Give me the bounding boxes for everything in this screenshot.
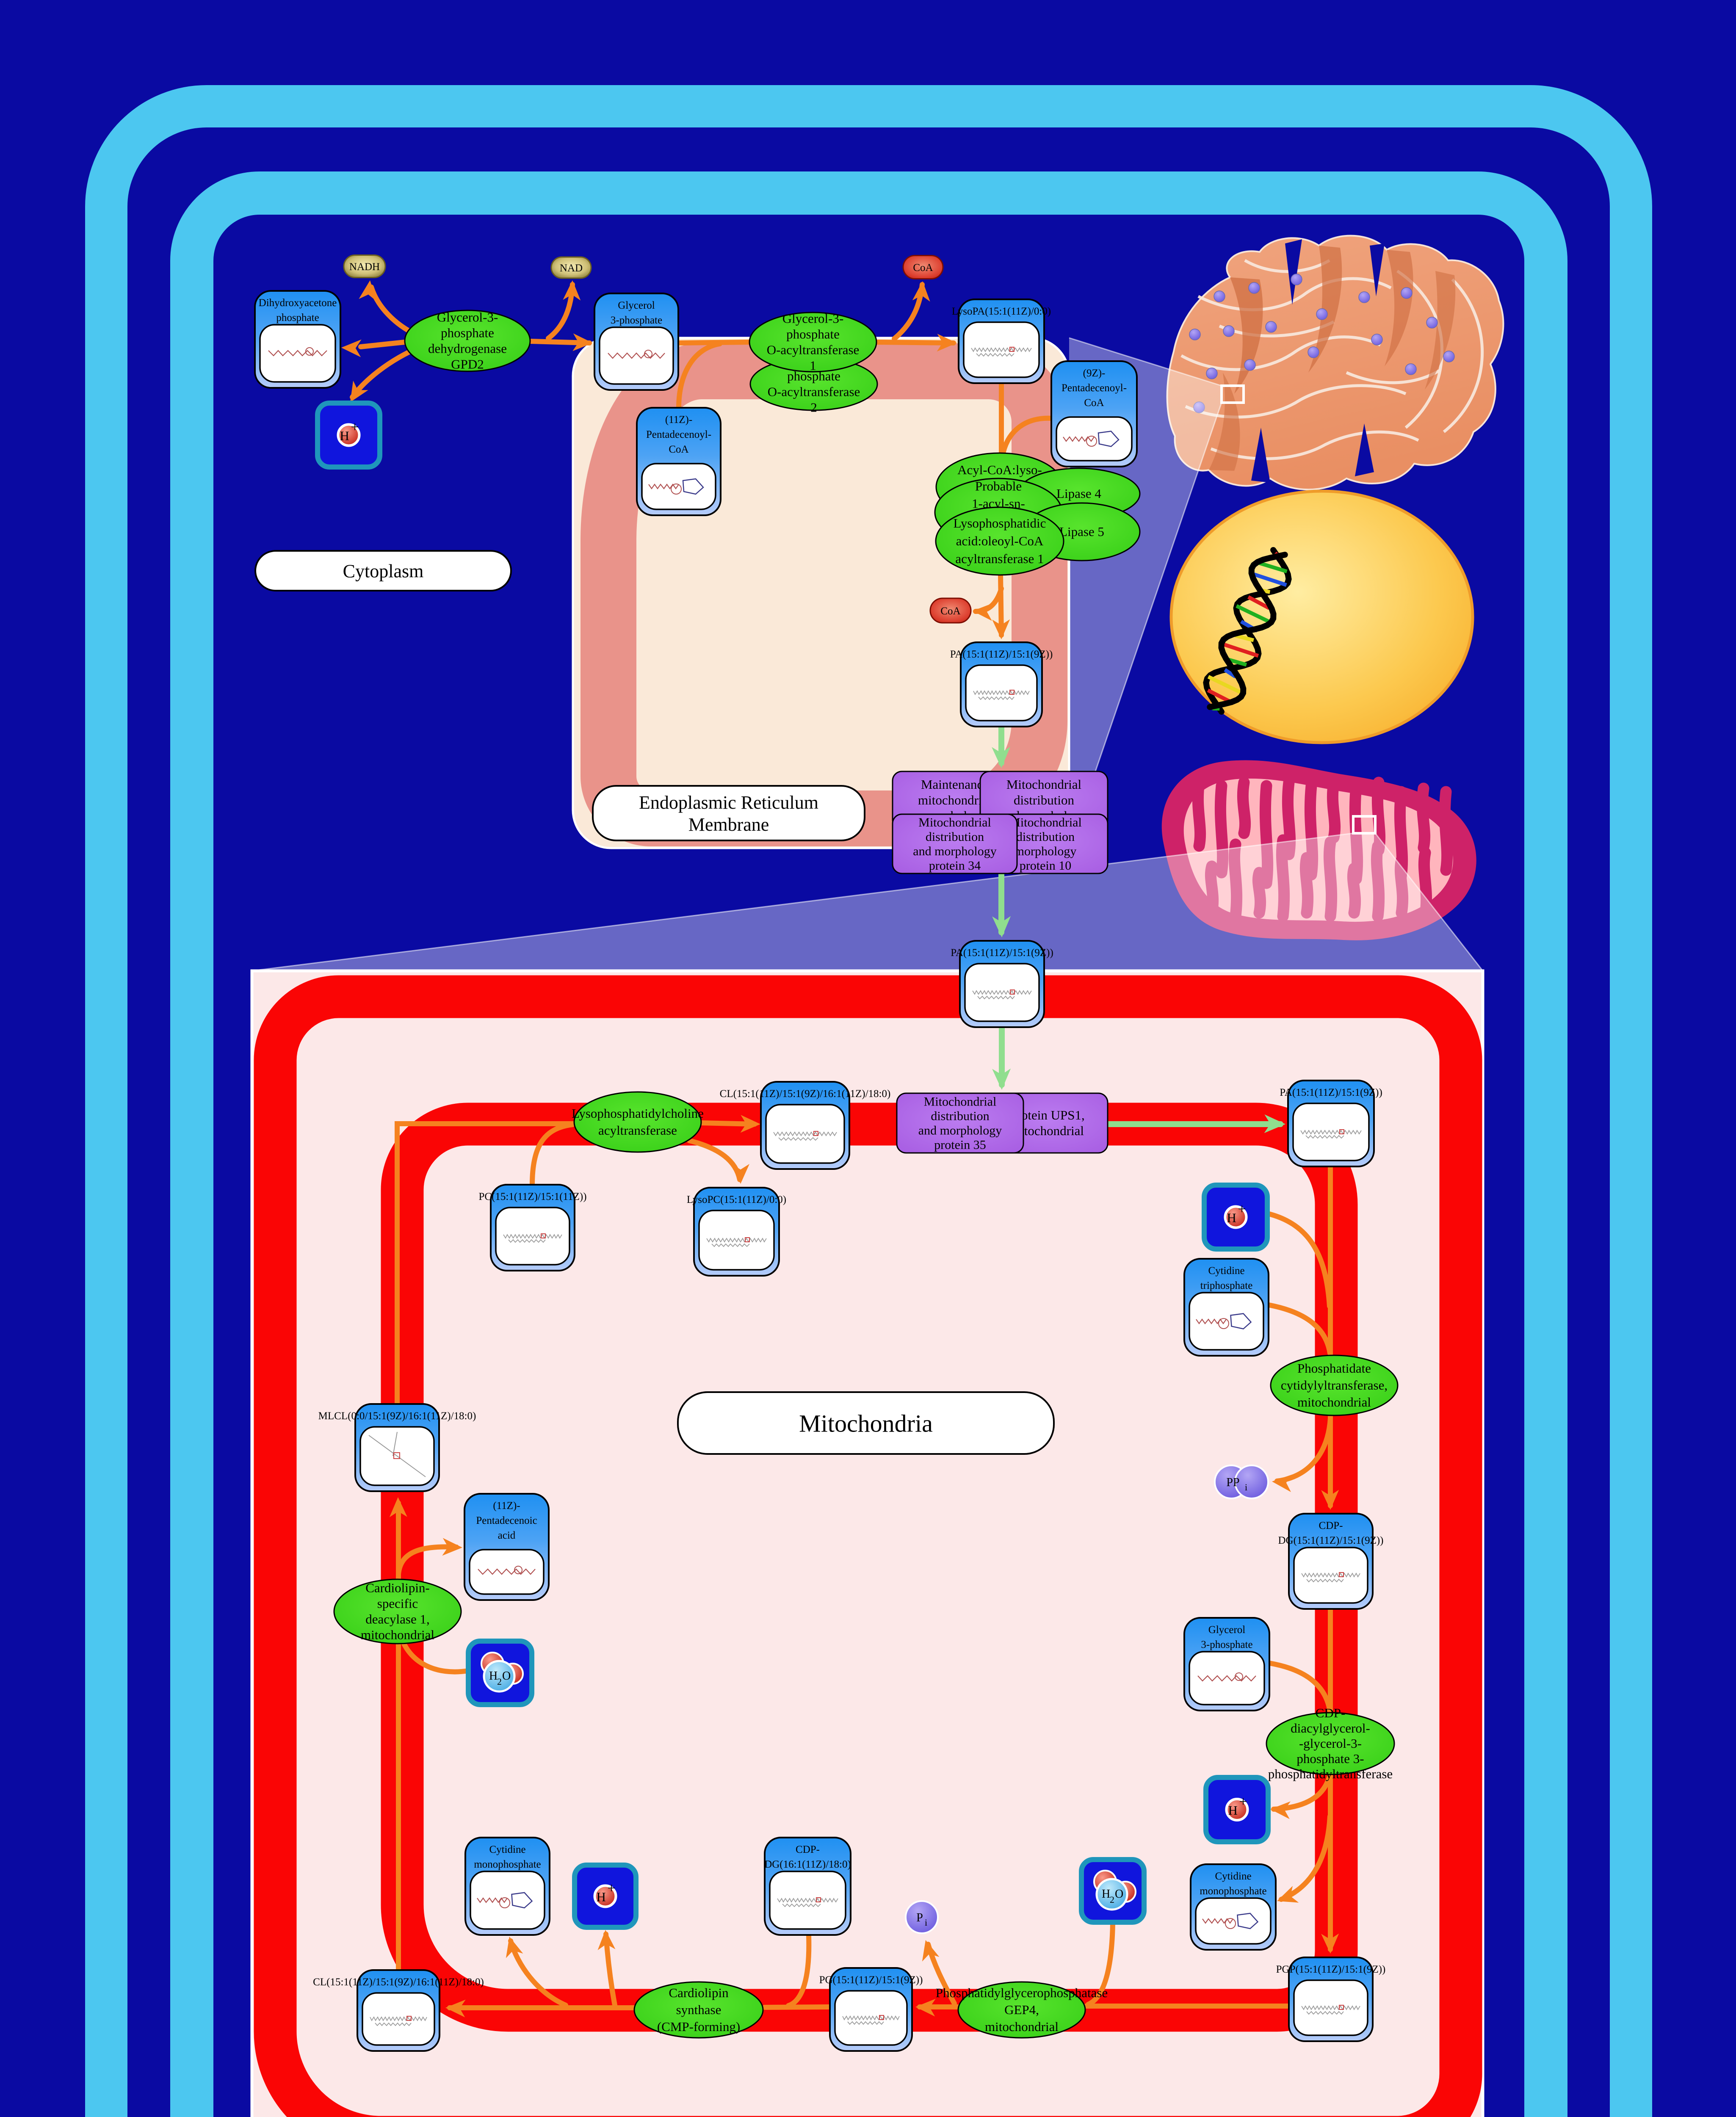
- svg-text:-glycerol-3-: -glycerol-3-: [1299, 1736, 1362, 1751]
- svg-text:acid:oleoyl-CoA: acid:oleoyl-CoA: [956, 533, 1044, 548]
- svg-text:O: O: [502, 1669, 511, 1683]
- svg-text:Endoplasmic Reticulum: Endoplasmic Reticulum: [639, 792, 818, 813]
- svg-text:protein 10: protein 10: [1020, 859, 1071, 873]
- svg-text:Membrane: Membrane: [688, 814, 769, 835]
- svg-text:phosphate 3-: phosphate 3-: [1296, 1751, 1364, 1766]
- svg-text:CDP-: CDP-: [1316, 1705, 1346, 1720]
- svg-text:Acyl-CoA:lyso-: Acyl-CoA:lyso-: [957, 462, 1042, 477]
- svg-text:i: i: [1245, 1482, 1247, 1492]
- svg-text:mitochondrial: mitochondrial: [985, 2019, 1059, 2034]
- svg-text:Lysophosphatidic: Lysophosphatidic: [954, 516, 1046, 531]
- svg-text:i: i: [925, 1917, 927, 1928]
- svg-text:acid: acid: [498, 1530, 516, 1541]
- svg-text:distribution: distribution: [1016, 830, 1075, 844]
- svg-text:CoA: CoA: [1084, 397, 1104, 409]
- svg-text:phosphate: phosphate: [441, 326, 494, 340]
- svg-text:1: 1: [810, 358, 816, 373]
- svg-text:2: 2: [810, 400, 817, 415]
- svg-text:3-phosphate: 3-phosphate: [1201, 1639, 1252, 1650]
- svg-text:Phosphatidylglycerophosphatase: Phosphatidylglycerophosphatase: [936, 1985, 1108, 2000]
- svg-text:(9Z)-: (9Z)-: [1083, 368, 1106, 379]
- svg-text:PP: PP: [1226, 1476, 1239, 1489]
- svg-text:+: +: [1239, 1794, 1247, 1810]
- svg-text:Mitochondrial: Mitochondrial: [1006, 777, 1081, 792]
- svg-text:Glycerol-3-: Glycerol-3-: [782, 311, 844, 326]
- svg-text:Mitochondrial: Mitochondrial: [924, 1095, 997, 1109]
- svg-text:(11Z)-: (11Z)-: [665, 414, 692, 426]
- svg-text:DG(16:1(11Z)/18:0): DG(16:1(11Z)/18:0): [764, 1859, 851, 1870]
- svg-text:PGP(15:1(11Z)/15:1(9Z)): PGP(15:1(11Z)/15:1(9Z)): [1276, 1964, 1386, 1975]
- svg-text:H: H: [1228, 1803, 1238, 1818]
- svg-text:acyltransferase: acyltransferase: [598, 1123, 677, 1138]
- svg-text:Cytidine: Cytidine: [1208, 1265, 1244, 1277]
- svg-text:O-acyltransferase: O-acyltransferase: [768, 384, 860, 399]
- svg-text:Mitochondrial: Mitochondrial: [1009, 815, 1082, 829]
- svg-text:PA(15:1(11Z)/15:1(9Z)): PA(15:1(11Z)/15:1(9Z)): [950, 649, 1053, 660]
- svg-text:O-acyltransferase: O-acyltransferase: [767, 343, 860, 357]
- svg-text:mitochondrial: mitochondrial: [361, 1628, 434, 1642]
- svg-text:LysoPA(15:1(11Z)/0:0): LysoPA(15:1(11Z)/0:0): [952, 306, 1051, 317]
- svg-text:dehydrogenase: dehydrogenase: [428, 341, 507, 356]
- svg-text:H: H: [489, 1669, 498, 1683]
- svg-text:monophosphate: monophosphate: [1200, 1885, 1266, 1897]
- svg-text:distribution: distribution: [1014, 793, 1074, 807]
- svg-text:Glycerol: Glycerol: [618, 300, 655, 311]
- svg-text:Mitochondria: Mitochondria: [799, 1409, 933, 1437]
- svg-text:3-phosphate: 3-phosphate: [611, 315, 662, 326]
- svg-text:CoA: CoA: [669, 444, 688, 455]
- svg-text:and morphology: and morphology: [913, 844, 996, 858]
- svg-text:H: H: [1102, 1888, 1110, 1901]
- svg-text:LysoPC(15:1(11Z)/0:0): LysoPC(15:1(11Z)/0:0): [687, 1194, 786, 1205]
- svg-text:Probable: Probable: [975, 479, 1022, 494]
- svg-text:2: 2: [1110, 1894, 1114, 1905]
- svg-text:and morphology: and morphology: [918, 1124, 1002, 1138]
- svg-text:2: 2: [497, 1676, 502, 1687]
- svg-text:monophosphate: monophosphate: [474, 1859, 541, 1870]
- svg-text:CL(15:1(11Z)/15:1(9Z)/16:1(11Z: CL(15:1(11Z)/15:1(9Z)/16:1(11Z)/18:0): [720, 1088, 891, 1100]
- svg-text:synthase: synthase: [676, 2002, 721, 2017]
- svg-text:acyltransferase 1: acyltransferase 1: [955, 551, 1044, 566]
- svg-text:distribution: distribution: [931, 1109, 989, 1123]
- svg-text:+: +: [1238, 1202, 1246, 1217]
- svg-text:mitochondrial: mitochondrial: [1297, 1395, 1371, 1409]
- svg-text:Lipase 4: Lipase 4: [1056, 486, 1101, 501]
- svg-text:PA(15:1(11Z)/15:1(9Z)): PA(15:1(11Z)/15:1(9Z)): [1280, 1087, 1382, 1098]
- svg-text:distribution: distribution: [926, 830, 984, 844]
- svg-text:Pentadecenoyl-: Pentadecenoyl-: [1062, 382, 1127, 394]
- svg-text:MLCL(0:0/15:1(9Z)/16:1(11Z)/18: MLCL(0:0/15:1(9Z)/16:1(11Z)/18:0): [318, 1410, 476, 1422]
- svg-text:H: H: [340, 428, 349, 443]
- svg-text:Phosphatidate: Phosphatidate: [1297, 1361, 1371, 1376]
- svg-text:phosphate: phosphate: [276, 312, 319, 323]
- svg-text:CDP-: CDP-: [1319, 1520, 1343, 1531]
- svg-text:Mitochondrial: Mitochondrial: [918, 815, 991, 829]
- svg-text:phosphatidyltransferase: phosphatidyltransferase: [1268, 1766, 1393, 1781]
- svg-text:+: +: [351, 420, 359, 435]
- svg-text:GPD2: GPD2: [451, 357, 484, 372]
- svg-text:GEP4,: GEP4,: [1004, 2002, 1039, 2017]
- svg-text:NAD: NAD: [560, 263, 583, 274]
- svg-text:Cardiolipin: Cardiolipin: [669, 1985, 729, 2000]
- svg-text:H: H: [1227, 1211, 1236, 1225]
- svg-text:Lipase 5: Lipase 5: [1059, 524, 1104, 539]
- svg-text:O: O: [1115, 1888, 1123, 1901]
- svg-text:Glycerol-3-: Glycerol-3-: [437, 310, 498, 325]
- svg-text:Cytoplasm: Cytoplasm: [343, 561, 424, 581]
- svg-text:triphosphate: triphosphate: [1200, 1280, 1253, 1291]
- svg-text:Pentadecenoic: Pentadecenoic: [476, 1515, 537, 1526]
- svg-text:protein 35: protein 35: [934, 1138, 986, 1152]
- svg-text:(CMP-forming): (CMP-forming): [657, 2019, 740, 2034]
- svg-text:PC(15:1(11Z)/15:1(11Z)): PC(15:1(11Z)/15:1(11Z)): [478, 1191, 586, 1202]
- svg-text:Dihydroxyacetone: Dihydroxyacetone: [259, 297, 337, 309]
- svg-text:Lysophosphatidylcholine: Lysophosphatidylcholine: [572, 1106, 704, 1121]
- svg-text:PA(15:1(11Z)/15:1(9Z)): PA(15:1(11Z)/15:1(9Z)): [951, 947, 1053, 959]
- svg-text:diacylglycerol-: diacylglycerol-: [1291, 1721, 1370, 1736]
- svg-text:deacylase 1,: deacylase 1,: [365, 1612, 429, 1627]
- svg-text:CoA: CoA: [913, 262, 933, 274]
- svg-text:+: +: [608, 1881, 616, 1896]
- svg-text:(11Z)-: (11Z)-: [493, 1500, 520, 1512]
- svg-text:CL(15:1(11Z)/15:1(9Z)/16:1(11Z: CL(15:1(11Z)/15:1(9Z)/16:1(11Z)/18:0): [313, 1976, 484, 1988]
- svg-text:CDP-: CDP-: [796, 1844, 820, 1855]
- svg-text:phosphate: phosphate: [786, 327, 840, 342]
- svg-text:Glycerol: Glycerol: [1208, 1624, 1246, 1636]
- svg-text:specific: specific: [377, 1596, 418, 1611]
- svg-text:CoA: CoA: [940, 605, 960, 617]
- svg-text:P: P: [916, 1911, 923, 1924]
- svg-text:DG(15:1(11Z)/15:1(9Z)): DG(15:1(11Z)/15:1(9Z)): [1278, 1535, 1383, 1546]
- svg-text:cytidylyltransferase,: cytidylyltransferase,: [1281, 1378, 1388, 1393]
- svg-text:protein 34: protein 34: [929, 859, 981, 873]
- svg-text:Cytidine: Cytidine: [1215, 1871, 1251, 1882]
- svg-text:Cardiolipin-: Cardiolipin-: [365, 1581, 430, 1595]
- svg-text:PG(15:1(11Z)/15:1(9Z)): PG(15:1(11Z)/15:1(9Z)): [819, 1974, 923, 1986]
- svg-text:Pentadecenoyl-: Pentadecenoyl-: [646, 429, 711, 440]
- svg-text:Cytidine: Cytidine: [489, 1844, 525, 1855]
- svg-text:H: H: [597, 1890, 606, 1904]
- svg-text:morphology: morphology: [1015, 844, 1077, 858]
- svg-text:Maintenance: Maintenance: [921, 777, 989, 792]
- svg-text:NADH: NADH: [349, 261, 380, 273]
